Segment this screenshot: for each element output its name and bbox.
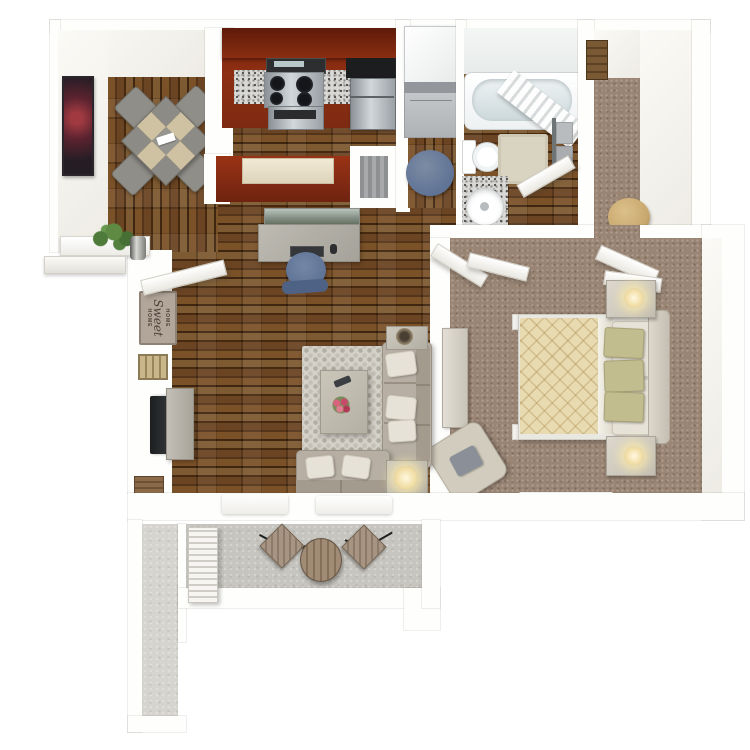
oven-window: [274, 110, 316, 119]
throw-pillow: [341, 454, 372, 480]
dresser: [442, 328, 468, 428]
bistro-table: [300, 538, 342, 582]
patio-west-wall: [128, 520, 142, 732]
desk-monitor: [288, 224, 324, 244]
stove-burner: [270, 76, 285, 91]
accent-pillow: [603, 359, 644, 392]
kitchen-counter-left: [234, 70, 266, 104]
media-console: [166, 388, 194, 460]
patio-door-mat: [316, 496, 392, 514]
desk-mouse: [330, 244, 337, 254]
throw-pillow: [387, 419, 416, 443]
key-holder: [138, 354, 168, 380]
stove-burner: [270, 92, 283, 105]
sink-drain: [480, 202, 489, 211]
bedroom-north-wall-east: [640, 225, 710, 238]
bed-comforter: [520, 318, 600, 434]
throw-pillow: [384, 350, 417, 378]
bedroom-doorway-carpet: [594, 225, 640, 238]
patio-east-wall: [422, 520, 440, 608]
coffee-table-flowers: [330, 396, 352, 416]
patio-storage-louver-door: [188, 527, 218, 603]
sign-text-bottom: HOME: [147, 309, 152, 328]
sofa-back-cushions: [416, 344, 430, 464]
entry-ledge-lower: [44, 256, 126, 274]
patio-closet-east-wall: [178, 524, 186, 642]
pantry-niche: [360, 156, 388, 198]
sofa-seat-seam: [384, 382, 416, 384]
throw-pillow: [385, 394, 417, 421]
accent-pillow: [603, 327, 645, 359]
bedroom-artwork: [666, 348, 694, 474]
sign-text-middle: Sweet: [152, 299, 164, 337]
towel: [556, 122, 573, 144]
laundry-stool: [406, 150, 454, 196]
accent-pillow: [603, 391, 644, 422]
decor-bowl: [396, 328, 413, 345]
breakfast-bar-top: [242, 158, 334, 184]
home-sweet-home-sign: HOME Sweet HOME: [138, 290, 174, 342]
range-display: [274, 61, 304, 67]
sign-text-top: HOME: [165, 309, 170, 328]
plant-vase: [130, 236, 146, 260]
nightstand-lamp: [624, 288, 644, 308]
refrigerator: [350, 78, 396, 130]
washer-control-strip: [404, 82, 458, 93]
kitchen-upper-cabinets: [222, 28, 396, 58]
bg-cover-west: [96, 250, 128, 732]
bathroom-north-wall-face: [464, 28, 586, 74]
patio-door-mat: [222, 494, 288, 514]
washer-door-line: [410, 100, 452, 101]
throw-pillow: [305, 455, 335, 480]
home-sweet-home-sign-face: HOME Sweet HOME: [139, 291, 177, 345]
end-table-lamp: [394, 466, 418, 490]
stove-burner: [296, 76, 313, 93]
dining-picture-frame: [62, 76, 94, 176]
patio-closet-floor: [142, 524, 178, 716]
south-wall: [128, 493, 744, 520]
bedroom-east-wall-face: [702, 238, 722, 493]
hall-shelf: [586, 40, 608, 80]
bedroom-north-wall-west: [430, 225, 594, 238]
hall-east-wall-face: [640, 30, 692, 232]
patio-closet-south-wall: [128, 716, 186, 732]
exterior-wall-right-upper: [692, 20, 710, 232]
nightstand-lamp: [624, 446, 644, 466]
kitchen-corner-counter: [346, 58, 396, 78]
refrigerator-divider: [350, 96, 394, 98]
stove-burner: [297, 92, 312, 107]
washer-dryer-top: [404, 26, 460, 84]
floorplan-image: HOME Sweet HOME: [0, 0, 750, 750]
